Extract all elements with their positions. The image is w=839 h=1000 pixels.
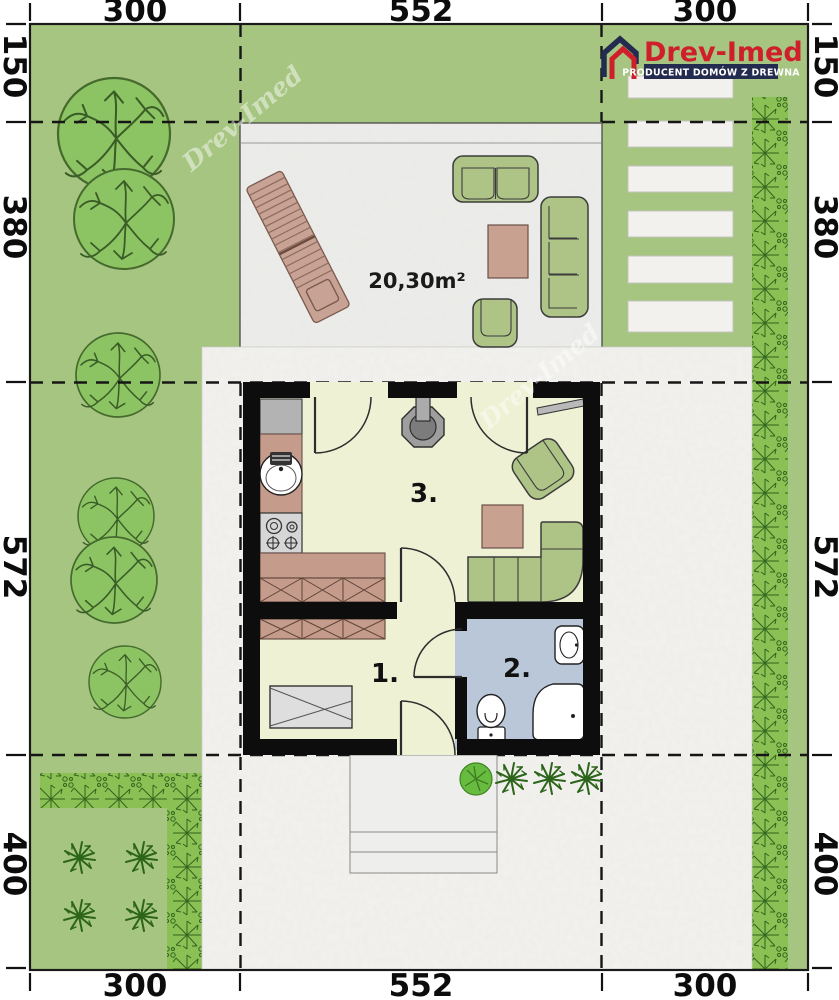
living-coffee-table — [482, 505, 523, 548]
tree-icon — [76, 333, 160, 417]
tree-icon — [89, 646, 161, 718]
dim-bottom-left: 300 — [103, 968, 168, 1000]
logo-brand-text: Drev-Imed — [644, 37, 803, 68]
dim-left-400: 400 — [0, 832, 32, 897]
terrace-sofa-3seat — [541, 197, 588, 317]
kitchen-counter-gray — [260, 399, 302, 434]
hedge-right-strip — [752, 97, 788, 970]
dim-right-572: 572 — [807, 535, 839, 600]
dim-left-572: 572 — [0, 535, 32, 600]
bedroom-label: 1. — [371, 659, 399, 689]
tree-icon — [74, 169, 174, 269]
bed — [270, 686, 352, 728]
dim-right-400: 400 — [807, 832, 839, 897]
cooktop — [260, 513, 302, 553]
kitchen-sink — [260, 452, 302, 495]
terrace-armchair — [473, 299, 517, 347]
dim-top-right: 300 — [673, 0, 738, 29]
terrace-coffee-table — [488, 225, 528, 278]
dim-top-center: 552 — [389, 0, 454, 29]
dim-bottom-right: 300 — [673, 968, 738, 1000]
dim-bottom-center: 552 — [389, 968, 454, 1000]
corner-bathtub — [533, 684, 584, 740]
bathroom-sink — [555, 626, 584, 664]
dim-left-380: 380 — [0, 195, 32, 260]
toilet — [477, 695, 505, 744]
site-plan-drawing: 20,30m² — [0, 0, 839, 1000]
bush-icon — [460, 763, 492, 795]
hedge-corner-vertical — [167, 773, 202, 970]
terrace-area-label: 20,30m² — [368, 269, 466, 293]
dim-left-150: 150 — [0, 34, 32, 99]
cabinet-row-lower — [260, 619, 385, 639]
bathroom-label: 2. — [503, 654, 531, 684]
kitchen-counter-l — [260, 553, 385, 578]
tree-icon — [71, 537, 157, 623]
living-room-label: 3. — [410, 479, 438, 509]
dim-right-150: 150 — [807, 34, 839, 99]
dim-top-left: 300 — [103, 0, 168, 29]
cabinet-row-upper — [260, 578, 385, 602]
terrace-sofa-2seat — [453, 156, 538, 202]
site-plan-page: 20,30m² — [0, 0, 839, 1000]
logo-tagline-text: PRODUCENT DOMÓW Z DREWNA — [622, 67, 800, 79]
dim-right-380: 380 — [807, 195, 839, 260]
